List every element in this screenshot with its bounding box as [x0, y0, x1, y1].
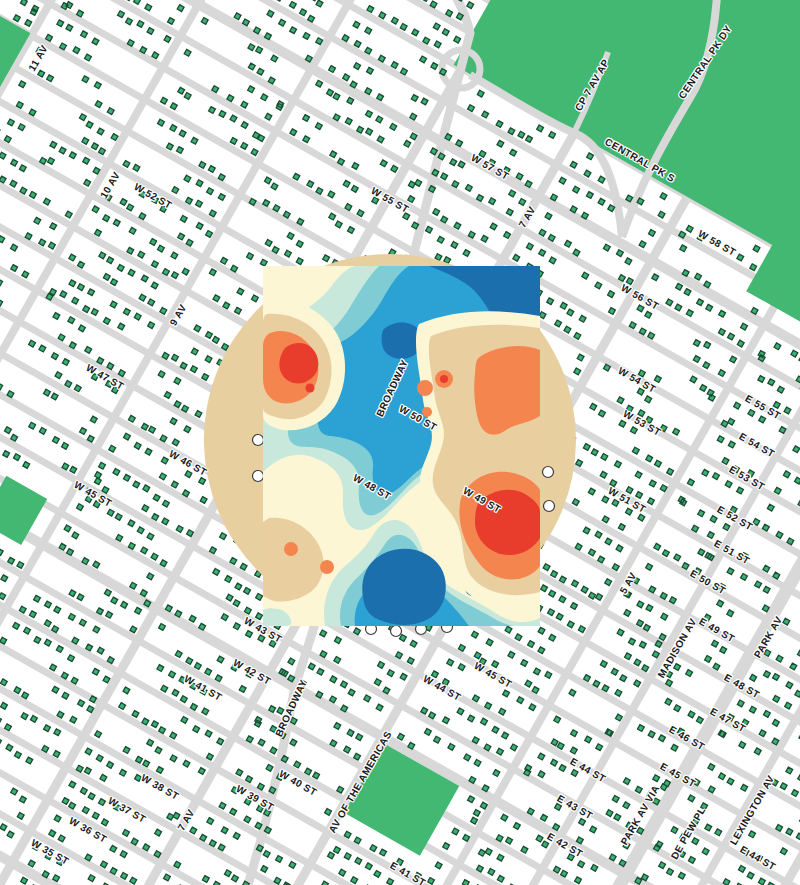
poi-circle: [544, 501, 555, 512]
map-canvas[interactable]: W 52 STW 55 STW 57 STW 58 STW 56 STW 54 …: [0, 0, 800, 885]
poi-circle: [253, 435, 264, 446]
poi-circle: [543, 467, 554, 478]
poi-circle: [253, 471, 264, 482]
poi-circle: [391, 626, 402, 637]
heatmap-overlay: [263, 266, 540, 626]
